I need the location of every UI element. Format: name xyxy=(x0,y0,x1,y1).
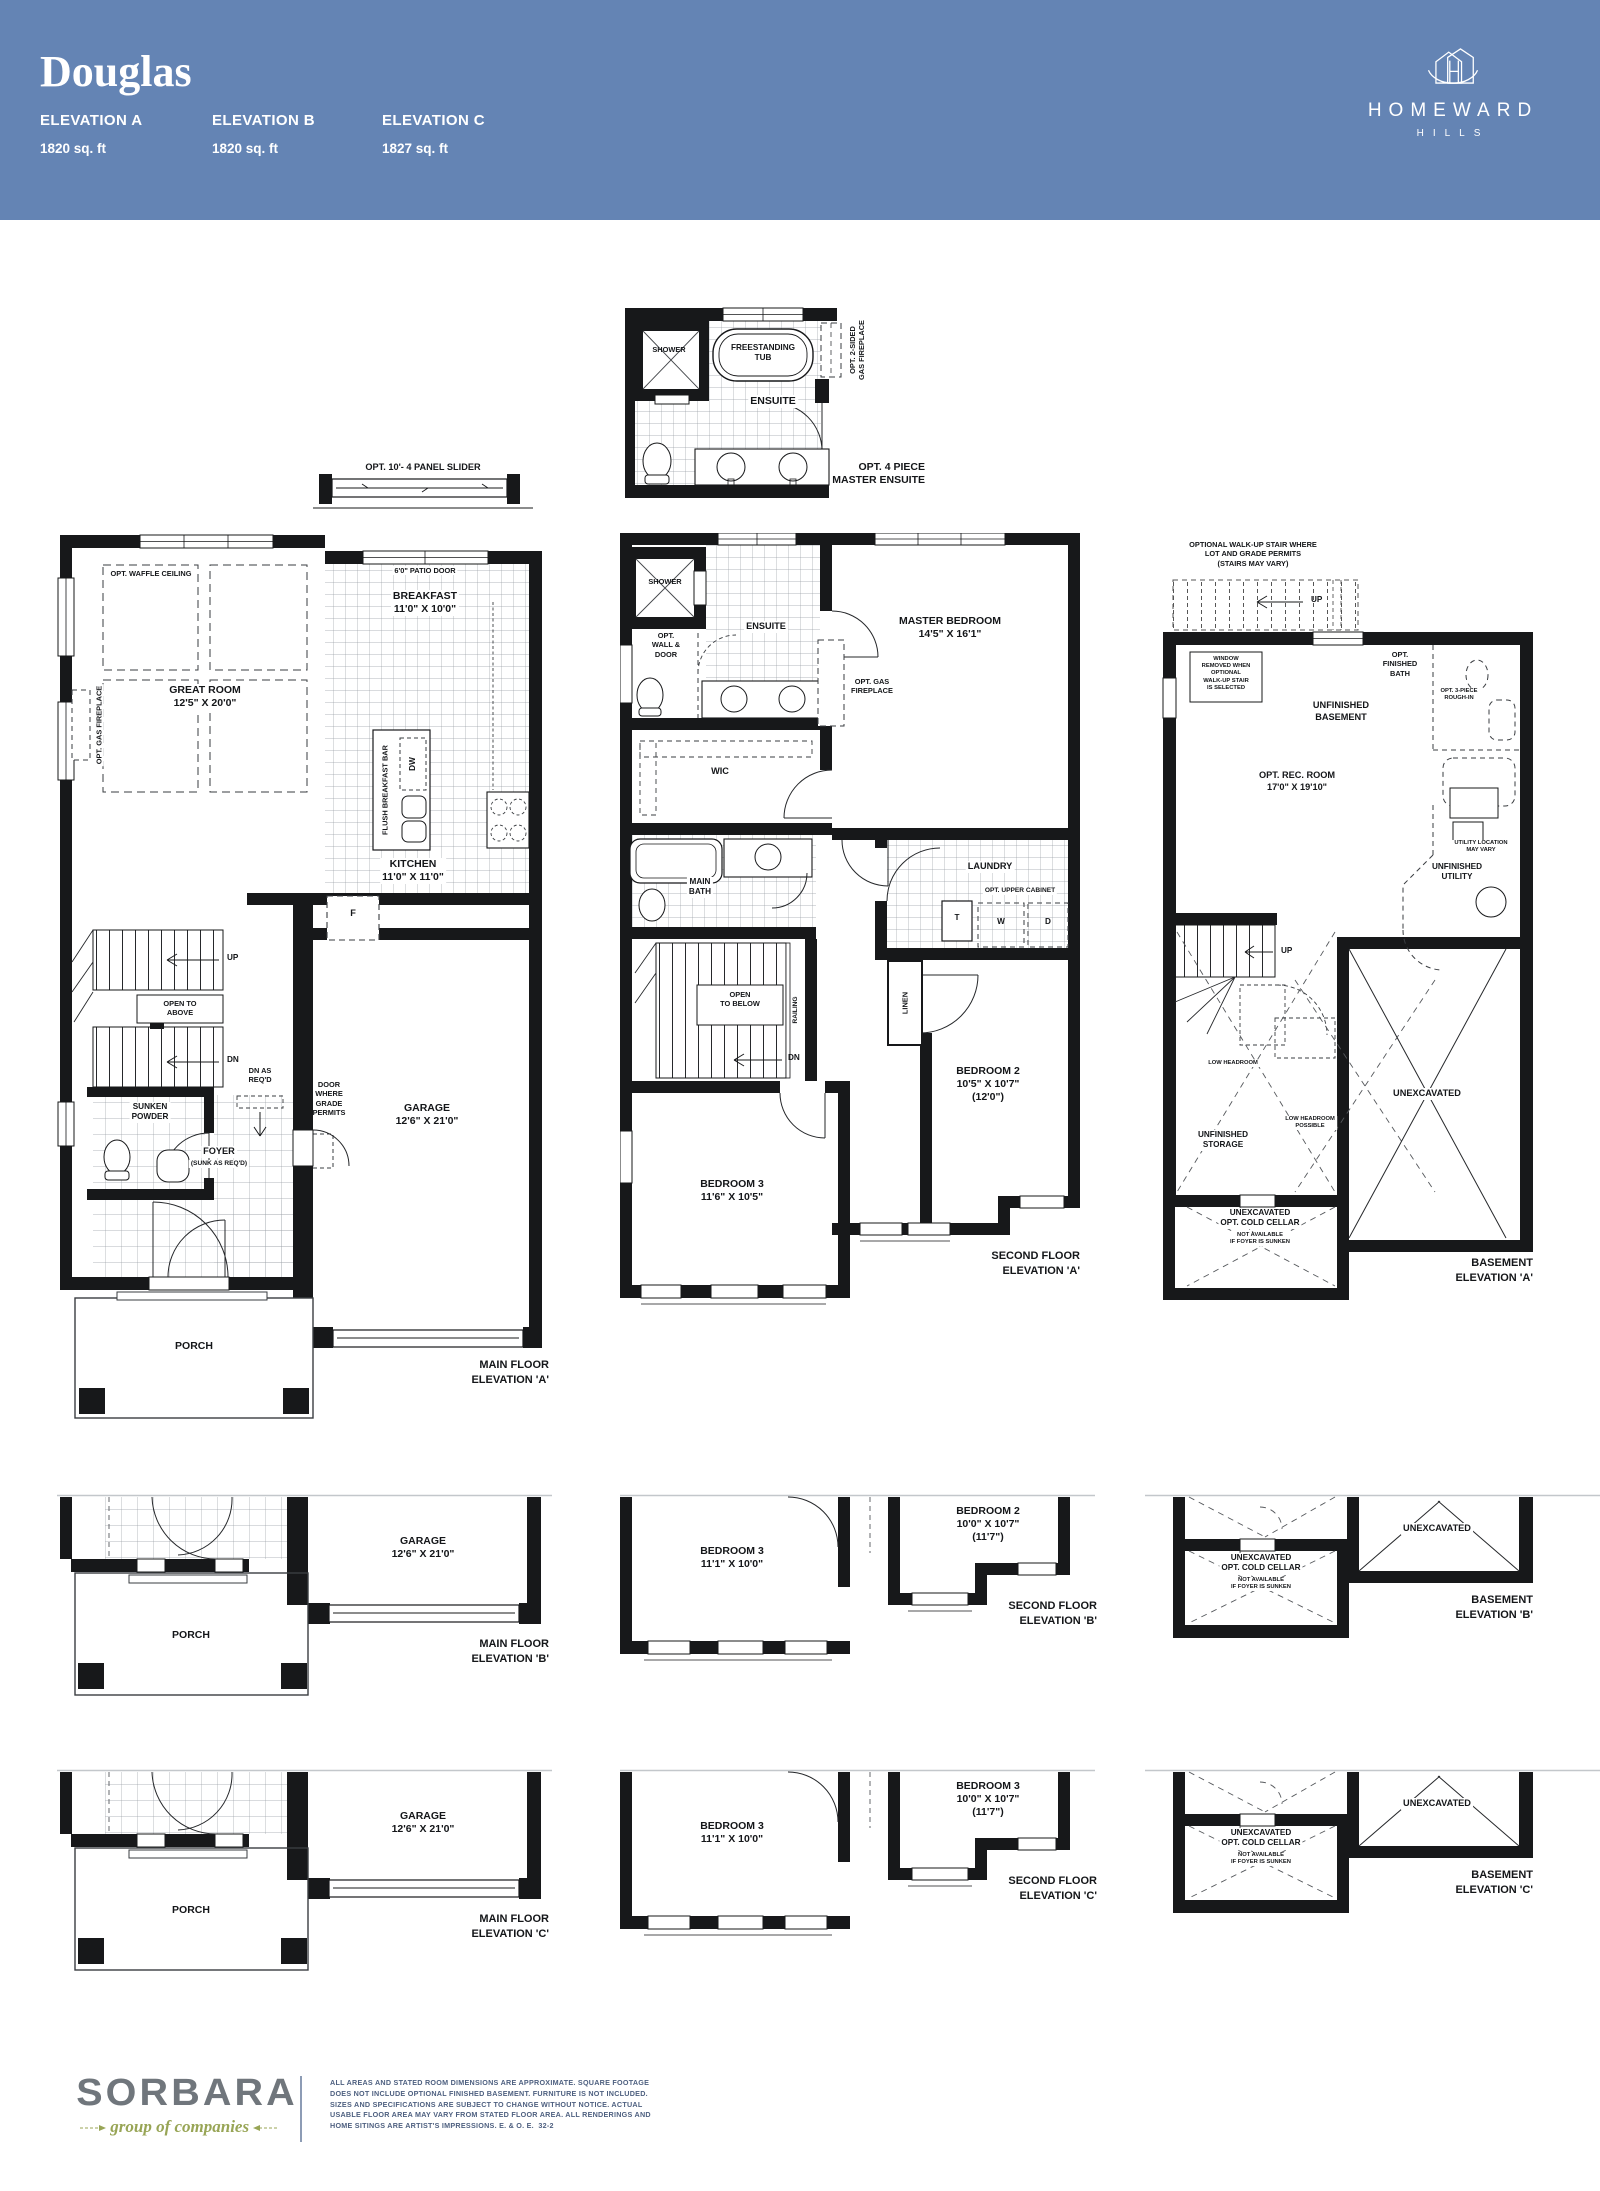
main-floor-c-plan: GARAGE 12'6" X 21'0" PORCH MAIN FLOOR EL… xyxy=(57,1768,552,1983)
label-linen: LINEN xyxy=(900,992,909,1014)
sorbara-logo: SORBARA group of companies xyxy=(80,2072,270,2137)
label-porch: PORCH xyxy=(175,1340,213,1353)
label-up-walkup: UP xyxy=(1311,595,1322,605)
caption-main-floor-c: MAIN FLOOR ELEVATION 'C' xyxy=(423,1912,549,1942)
tagline-left-arrow-icon xyxy=(80,2124,106,2132)
caption-basement-c: BASEMENT ELEVATION 'C' xyxy=(1413,1868,1533,1898)
label-kitchen: KITCHEN 11'0" X 11'0" xyxy=(380,858,446,884)
caption-main-floor-b: MAIN FLOOR ELEVATION 'B' xyxy=(423,1637,549,1667)
elevation-b-name: ELEVATION B xyxy=(212,112,315,129)
page-title: Douglas xyxy=(40,46,192,97)
basement-c-plan: UNEXCAVATED UNEXCAVATED OPT. COLD CELLAR… xyxy=(1145,1768,1600,1928)
label-gas-fireplace: OPT. GAS FIREPLACE xyxy=(94,684,103,766)
label-bedroom3b-c: BEDROOM 3 10'0" X 10'7" (11'7") xyxy=(956,1780,1020,1819)
label-railing: RAILING xyxy=(792,996,800,1023)
elevation-a-sqft: 1820 sq. ft xyxy=(40,141,142,156)
label-laundry: LAUNDRY xyxy=(966,861,1015,873)
elevation-c-header: ELEVATION C 1827 sq. ft xyxy=(382,112,485,156)
second-floor-a-plan: SHOWER ENSUITE OPT. WALL & DOOR MASTER B… xyxy=(620,533,1095,1323)
label-dn: DN xyxy=(227,1055,239,1065)
basement-a-plan: OPTIONAL WALK-UP STAIR WHERE LOT AND GRA… xyxy=(1145,540,1600,1300)
label-dn-2f: DN xyxy=(788,1053,800,1063)
label-low-headroom: LOW HEADROOM xyxy=(1206,1060,1260,1067)
label-cold-cellar-b: UNEXCAVATED OPT. COLD CELLAR xyxy=(1219,1553,1302,1574)
label-foyer-sub: (SUNK AS REQ'D) xyxy=(189,1160,249,1168)
label-garage-b: GARAGE 12'6" X 21'0" xyxy=(392,1535,455,1561)
label-shower: SHOWER xyxy=(652,345,685,354)
label-door-where-grade: DOOR WHERE GRADE PERMITS xyxy=(313,1080,346,1117)
label-wic: WIC xyxy=(711,766,729,778)
label-ensuite: ENSUITE xyxy=(748,395,798,408)
elevation-c-name: ELEVATION C xyxy=(382,112,485,129)
label-breakfast: BREAKFAST 11'0" X 10'0" xyxy=(391,590,459,616)
label-bedroom3: BEDROOM 3 11'6" X 10'5" xyxy=(700,1178,764,1204)
label-laundry-tub: T xyxy=(954,913,959,923)
basement-b-plan: UNEXCAVATED UNEXCAVATED OPT. COLD CELLAR… xyxy=(1145,1493,1600,1653)
label-dn-as-reqd: DN AS REQ'D xyxy=(246,1066,273,1085)
label-main-bath: MAIN BATH xyxy=(687,877,713,898)
label-bedroom2: BEDROOM 2 10'5" X 10'7" (12'0") xyxy=(956,1065,1020,1104)
label-unfinished-basement: UNFINISHED BASEMENT xyxy=(1313,700,1369,723)
main-floor-b-plan: GARAGE 12'6" X 21'0" PORCH MAIN FLOOR EL… xyxy=(57,1493,552,1708)
elevation-b-header: ELEVATION B 1820 sq. ft xyxy=(212,112,315,156)
floorplan-sheet: Douglas ELEVATION A 1820 sq. ft ELEVATIO… xyxy=(0,0,1600,2191)
brand-wordmark: HOMEWARD xyxy=(1363,100,1543,122)
label-upper-cabinet: OPT. UPPER CABINET xyxy=(983,887,1057,895)
label-fridge: F xyxy=(350,908,356,920)
elevation-b-sqft: 1820 sq. ft xyxy=(212,141,315,156)
sorbara-tagline: group of companies xyxy=(80,2117,270,2137)
homeward-hills-logo: HOMEWARD HILLS xyxy=(1363,40,1543,139)
label-foyer: FOYER xyxy=(201,1146,237,1158)
caption-second-floor-c: SECOND FLOOR ELEVATION 'C' xyxy=(977,1874,1097,1904)
brand-subtitle: HILLS xyxy=(1363,128,1543,139)
tagline-right-arrow-icon xyxy=(253,2124,279,2132)
elevation-a-header: ELEVATION A 1820 sq. ft xyxy=(40,112,142,156)
label-up: UP xyxy=(227,953,238,963)
house-logo-icon xyxy=(1421,40,1485,92)
label-master-ensuite-caption: OPT. 4 PIECE MASTER ENSUITE xyxy=(829,461,925,487)
label-washer: W xyxy=(997,917,1005,927)
label-great-room: GREAT ROOM 12'5" X 20'0" xyxy=(167,684,243,710)
label-open-to-above: OPEN TO ABOVE xyxy=(163,999,196,1018)
basement-a-linework xyxy=(1145,540,1600,1300)
second-floor-b-linework xyxy=(620,1493,1095,1668)
label-opt-rec-room: OPT. REC. ROOM 17'0" X 19'10" xyxy=(1259,770,1335,793)
caption-second-floor-b: SECOND FLOOR ELEVATION 'B' xyxy=(977,1599,1097,1629)
label-2-sided-fireplace: OPT. 2-SIDED GAS FIREPLACE xyxy=(848,320,867,380)
label-cold-cellar-note: NOT AVAILABLE IF FOYER IS SUNKEN xyxy=(1228,1232,1292,1246)
second-floor-c-plan: BEDROOM 3 11'1" X 10'0" BEDROOM 3 10'0" … xyxy=(620,1768,1095,1943)
second-floor-c-linework xyxy=(620,1768,1095,1943)
label-dishwasher: DW xyxy=(408,757,418,771)
label-open-to-below: OPEN TO BELOW xyxy=(720,990,760,1009)
tagline-text: group of companies xyxy=(110,2117,249,2136)
label-up-basement: UP xyxy=(1281,946,1292,956)
disclaimer-text: ALL AREAS AND STATED ROOM DIMENSIONS ARE… xyxy=(330,2078,650,2132)
label-opt-slider: OPT. 10'- 4 PANEL SLIDER xyxy=(365,462,480,474)
label-utility-location: UTILITY LOCATION MAY VARY xyxy=(1452,840,1509,854)
footer: SORBARA group of companies ALL AREAS AND… xyxy=(0,2058,1600,2178)
label-bedroom3-c: BEDROOM 3 11'1" X 10'0" xyxy=(700,1820,764,1846)
header-band: Douglas ELEVATION A 1820 sq. ft ELEVATIO… xyxy=(0,0,1600,220)
label-bedroom2-b: BEDROOM 2 10'0" X 10'7" (11'7") xyxy=(956,1505,1020,1544)
label-ensuite-2f: ENSUITE xyxy=(744,621,788,633)
label-cold-cellar: UNEXCAVATED OPT. COLD CELLAR xyxy=(1218,1208,1301,1229)
basement-b-linework xyxy=(1145,1493,1600,1653)
second-floor-a-linework xyxy=(620,533,1095,1323)
label-waffle-ceiling: OPT. WAFFLE CEILING xyxy=(111,569,192,578)
elevation-a-name: ELEVATION A xyxy=(40,112,142,129)
label-porch-c: PORCH xyxy=(172,1904,210,1917)
label-unfinished-storage: UNFINISHED STORAGE xyxy=(1196,1130,1250,1151)
caption-second-floor-a: SECOND FLOOR ELEVATION 'A' xyxy=(950,1249,1080,1279)
label-unexcavated-b: UNEXCAVATED xyxy=(1401,1523,1473,1535)
label-unexcavated-c: UNEXCAVATED xyxy=(1401,1798,1473,1810)
label-shower-2f: SHOWER xyxy=(648,577,681,586)
label-dryer: D xyxy=(1045,917,1051,927)
label-garage: GARAGE 12'6" X 21'0" xyxy=(396,1102,459,1128)
label-unexcavated: UNEXCAVATED xyxy=(1391,1088,1463,1100)
label-low-headroom-possible: LOW HEADROOM POSSIBLE xyxy=(1283,1116,1337,1130)
elevation-c-sqft: 1827 sq. ft xyxy=(382,141,485,156)
label-sunken-powder: SUNKEN POWDER xyxy=(130,1102,171,1123)
ensuite-detail-plan: SHOWER FREESTANDING TUB ENSUITE OPT. 2-S… xyxy=(625,303,927,521)
label-opt-wall-door: OPT. WALL & DOOR xyxy=(650,631,682,659)
label-opt-gas-fireplace-2f: OPT. GAS FIREPLACE xyxy=(849,677,895,696)
main-floor-b-linework xyxy=(57,1493,552,1708)
label-opt-finished-bath: OPT. FINISHED BATH xyxy=(1381,650,1420,678)
label-garage-c: GARAGE 12'6" X 21'0" xyxy=(392,1810,455,1836)
label-rough-in: OPT. 3-PIECE ROUGH-IN xyxy=(1438,688,1479,702)
ensuite-detail-linework xyxy=(625,303,927,521)
label-cold-cellar-note-b: NOT AVAILABLE IF FOYER IS SUNKEN xyxy=(1229,1577,1293,1591)
caption-main-floor-a: MAIN FLOOR ELEVATION 'A' xyxy=(423,1358,549,1388)
sorbara-wordmark: SORBARA xyxy=(76,2072,274,2115)
label-bedroom3-b: BEDROOM 3 11'1" X 10'0" xyxy=(700,1545,764,1571)
label-master-bedroom: MASTER BEDROOM 14'5" X 16'1" xyxy=(899,615,1001,641)
label-window-removed-note: WINDOW REMOVED WHEN OPTIONAL WALK-UP STA… xyxy=(1202,656,1251,692)
label-cold-cellar-c: UNEXCAVATED OPT. COLD CELLAR xyxy=(1219,1828,1302,1849)
label-porch-b: PORCH xyxy=(172,1629,210,1642)
main-floor-a-linework xyxy=(57,462,552,1424)
caption-basement-a: BASEMENT ELEVATION 'A' xyxy=(1413,1256,1533,1286)
label-walkup-note: OPTIONAL WALK-UP STAIR WHERE LOT AND GRA… xyxy=(1189,540,1317,568)
caption-basement-b: BASEMENT ELEVATION 'B' xyxy=(1413,1593,1533,1623)
label-breakfast-bar: FLUSH BREAKFAST BAR xyxy=(380,743,389,837)
main-floor-a-plan: OPT. 10'- 4 PANEL SLIDER 6'0" PATIO DOOR… xyxy=(57,462,552,1424)
label-cold-cellar-note-c: NOT AVAILABLE IF FOYER IS SUNKEN xyxy=(1229,1852,1293,1866)
main-floor-c-linework xyxy=(57,1768,552,1983)
second-floor-b-plan: BEDROOM 3 11'1" X 10'0" BEDROOM 2 10'0" … xyxy=(620,1493,1095,1668)
label-patio-door: 6'0" PATIO DOOR xyxy=(392,566,457,575)
basement-c-linework xyxy=(1145,1768,1600,1928)
label-freestanding-tub: FREESTANDING TUB xyxy=(731,343,795,364)
label-unfinished-utility: UNFINISHED UTILITY xyxy=(1432,862,1482,883)
footer-divider xyxy=(300,2076,302,2142)
